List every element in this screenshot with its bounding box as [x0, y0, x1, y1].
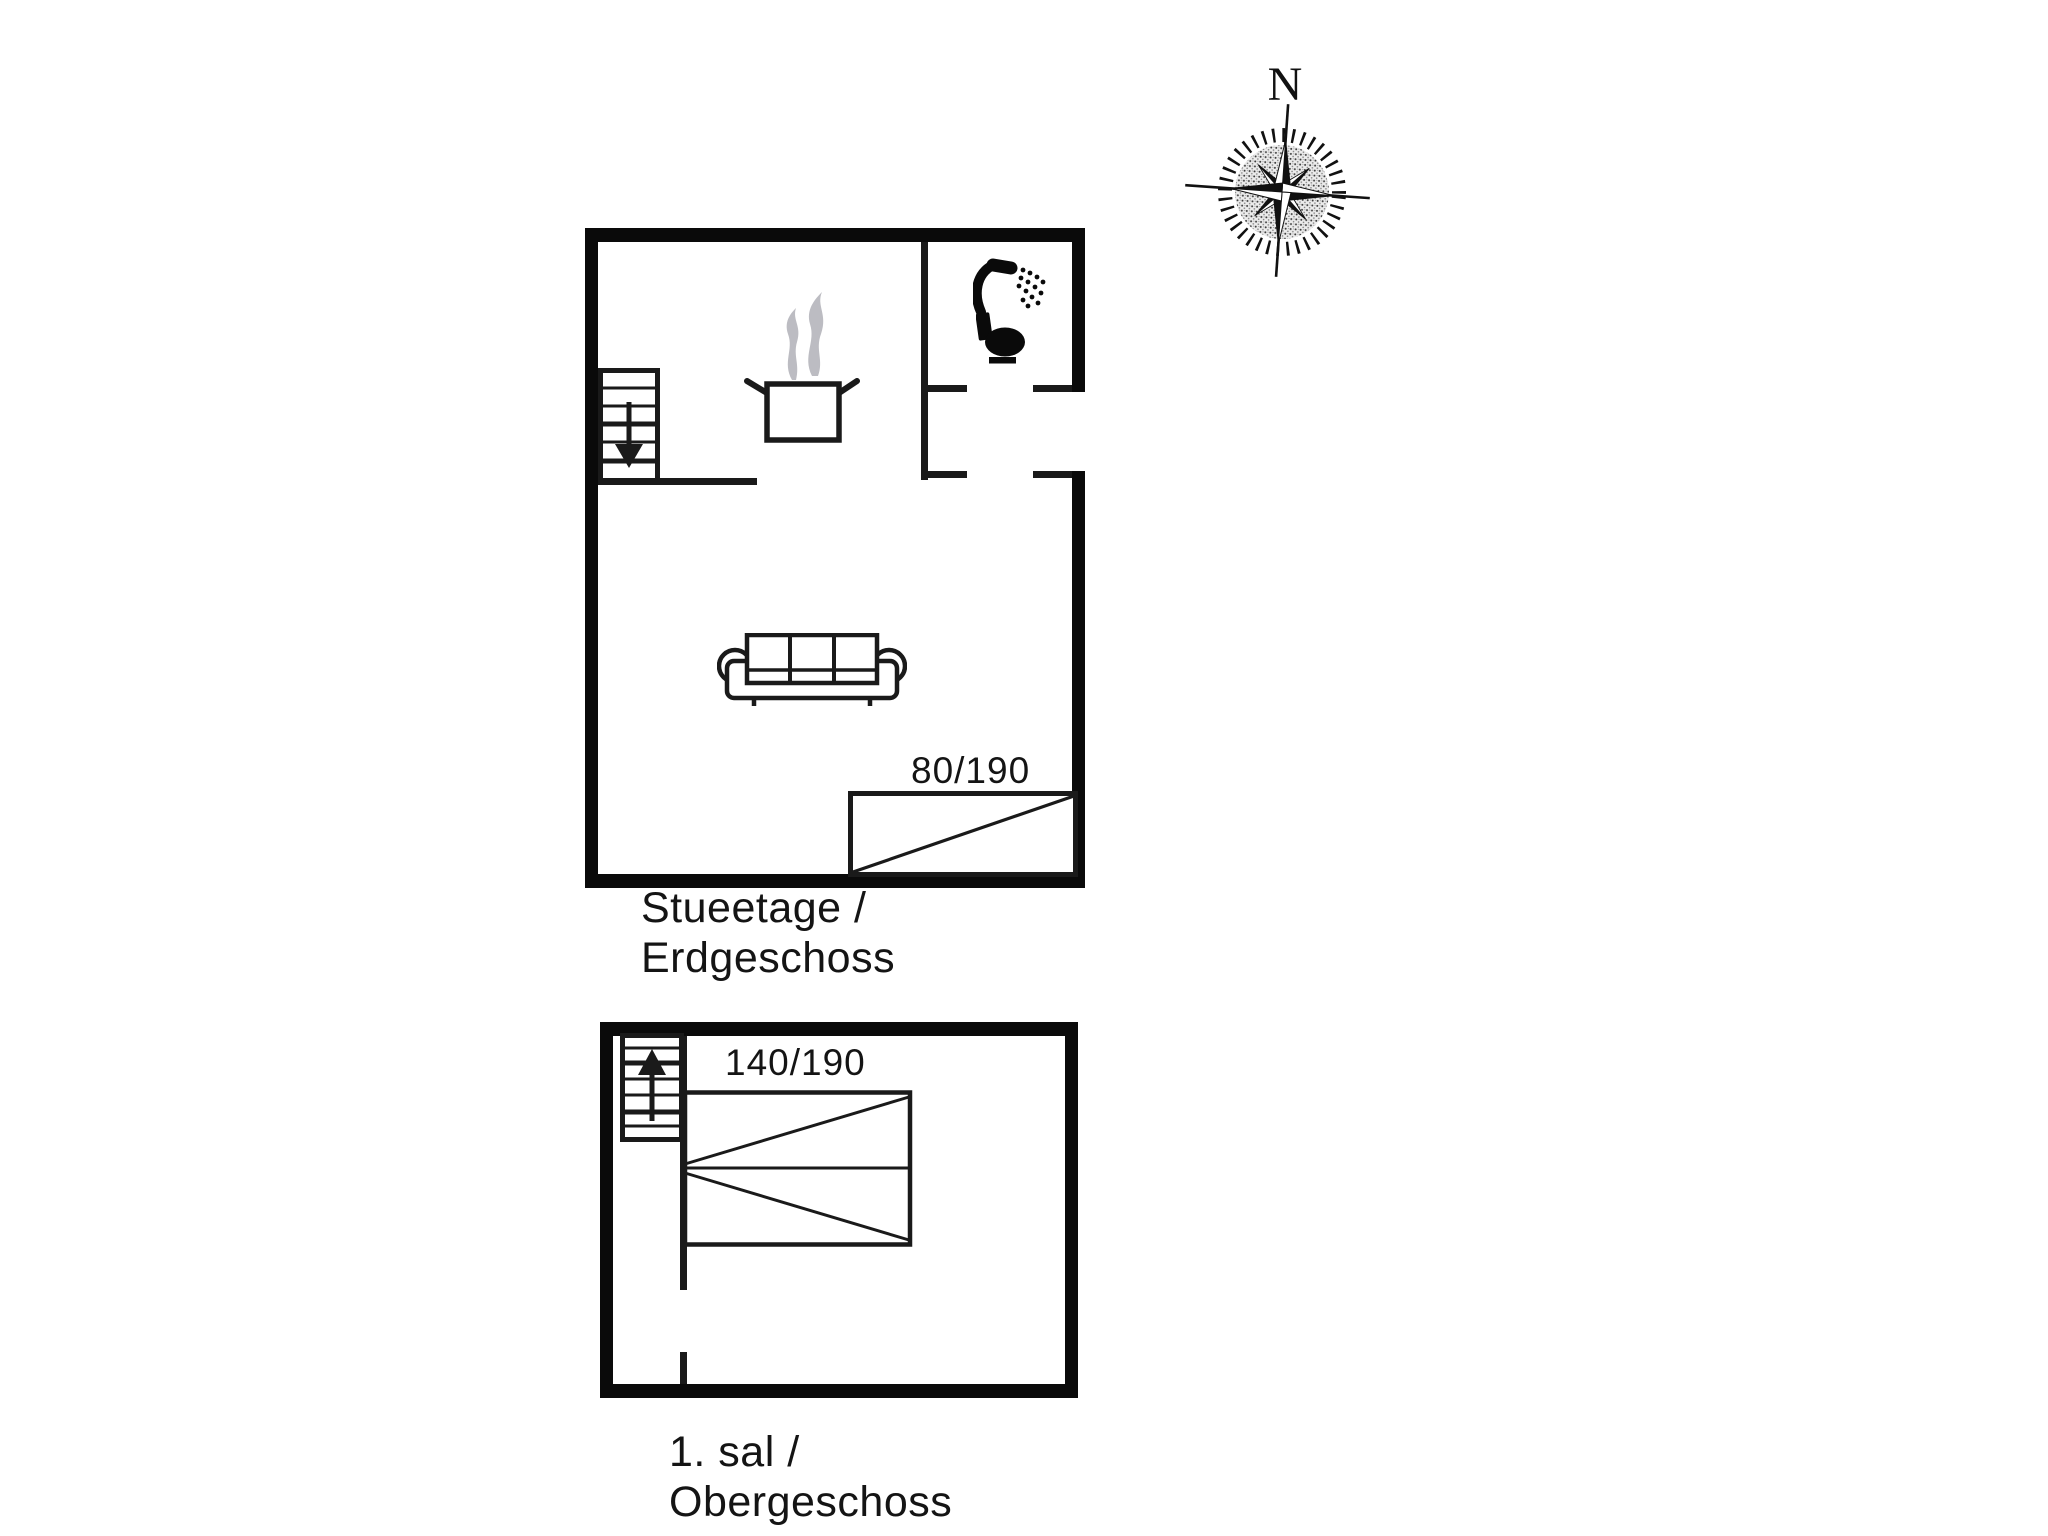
gf-hall-wall-left [921, 471, 967, 478]
uf-wall-right [1065, 1022, 1078, 1398]
gf-bathroom-left-wall [921, 242, 928, 480]
uf-divider-wall-lower [680, 1352, 687, 1384]
uf-bed-size-label: 140/190 [725, 1042, 866, 1084]
upper-floor-plan: 140/190 [600, 1022, 1078, 1398]
gf-bed-size-label: 80/190 [911, 750, 1030, 792]
steam-icon [778, 292, 838, 382]
floorplan-page: N [0, 0, 2048, 1536]
gf-wall-left [585, 228, 598, 888]
cooking-pot-icon [742, 378, 862, 446]
ground-floor-title: Stueetage / Erdgeschoss [641, 884, 895, 984]
sofa-icon [717, 633, 907, 707]
uf-wall-left [600, 1022, 613, 1398]
gf-wall-right-upper [1072, 228, 1085, 392]
uf-wall-bottom [600, 1384, 1078, 1398]
stairs-down-icon [598, 368, 660, 483]
compass: N [1152, 52, 1412, 300]
shower-icon [973, 256, 1061, 316]
toilet-icon [976, 312, 1028, 364]
gf-hall-wall-right [1033, 471, 1072, 478]
gf-bathroom-bottom-wall-right [1033, 385, 1072, 392]
upper-floor-title: 1. sal / Obergeschoss [669, 1428, 952, 1528]
compass-north-label: N [1268, 58, 1303, 111]
ground-floor-plan: 80/190 [585, 228, 1085, 888]
double-bed-icon [683, 1090, 913, 1247]
gf-bathroom-bottom-wall-left [921, 385, 967, 392]
stairs-up-icon [620, 1033, 684, 1142]
gf-wall-top [585, 228, 1085, 242]
single-bed-icon [848, 791, 1078, 877]
compass-rose-icon: N [1152, 52, 1412, 300]
